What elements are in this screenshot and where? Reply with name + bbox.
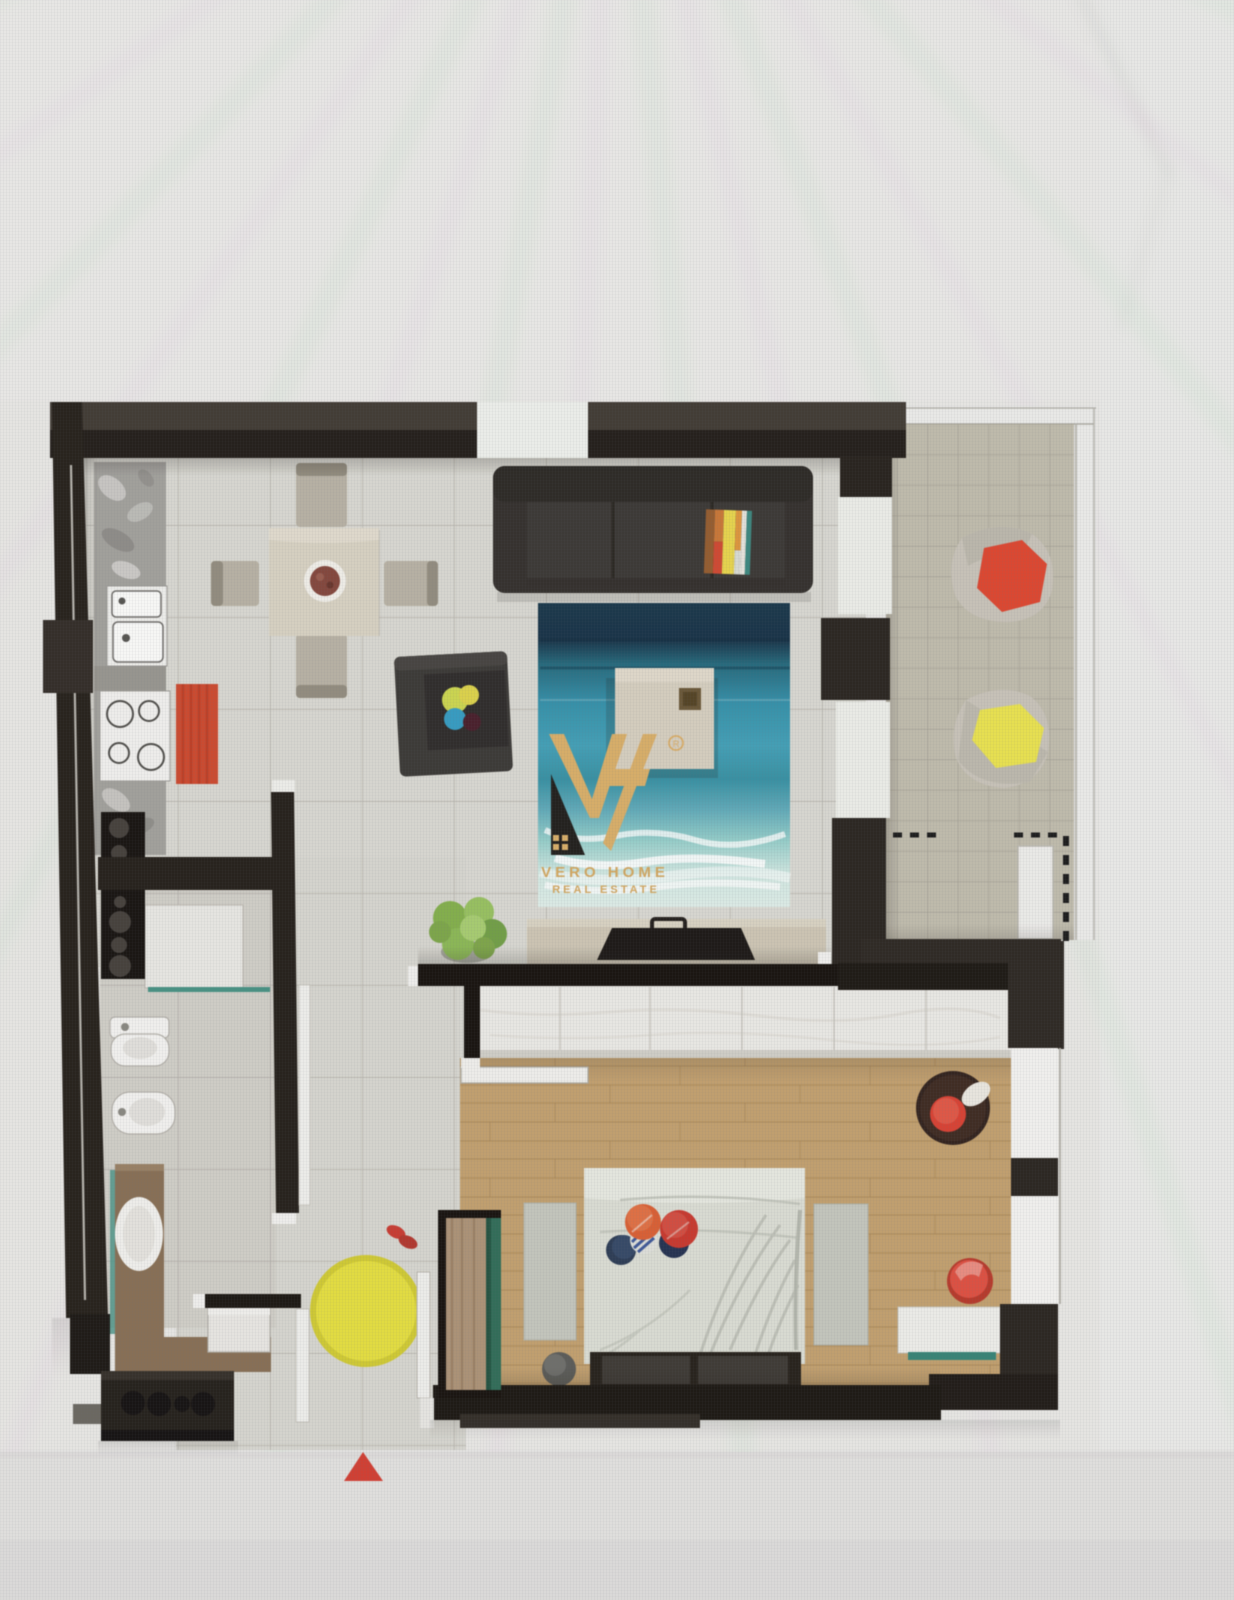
svg-text:REAL ESTATE: REAL ESTATE <box>552 884 660 896</box>
svg-text:VERO HOME: VERO HOME <box>541 864 669 881</box>
svg-text:R: R <box>673 739 680 749</box>
